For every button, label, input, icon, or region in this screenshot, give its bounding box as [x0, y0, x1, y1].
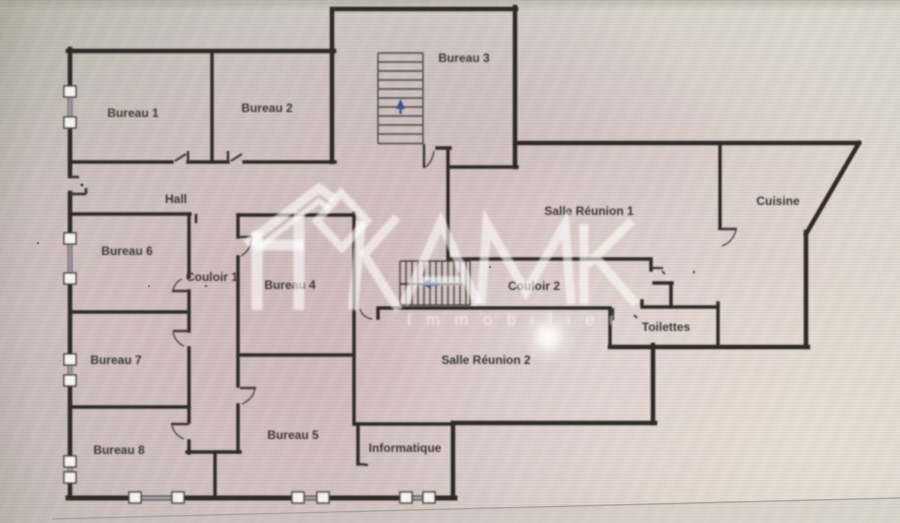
svg-text:Bureau 8: Bureau 8 — [93, 443, 145, 457]
svg-text:Bureau 3: Bureau 3 — [438, 51, 490, 65]
svg-text:Bureau 5: Bureau 5 — [267, 428, 319, 442]
svg-text:Informatique: Informatique — [369, 441, 442, 455]
svg-text:Bureau 1: Bureau 1 — [107, 106, 159, 120]
svg-text:Bureau 4: Bureau 4 — [264, 278, 316, 292]
svg-text:Hall: Hall — [165, 192, 187, 206]
svg-text:Bureau 7: Bureau 7 — [90, 353, 142, 367]
svg-text:Cuisine: Cuisine — [756, 194, 800, 208]
svg-text:Toilettes: Toilettes — [642, 320, 691, 334]
svg-text:I m m o b i l i e r: I m m o b i l i e r — [407, 311, 619, 329]
svg-text:Salle Réunion 1: Salle Réunion 1 — [544, 204, 634, 218]
svg-text:Couloir 1: Couloir 1 — [186, 270, 238, 284]
svg-text:Bureau 6: Bureau 6 — [101, 244, 153, 258]
svg-text:Salle Réunion 2: Salle Réunion 2 — [441, 353, 531, 367]
svg-text:Bureau 2: Bureau 2 — [241, 101, 293, 115]
